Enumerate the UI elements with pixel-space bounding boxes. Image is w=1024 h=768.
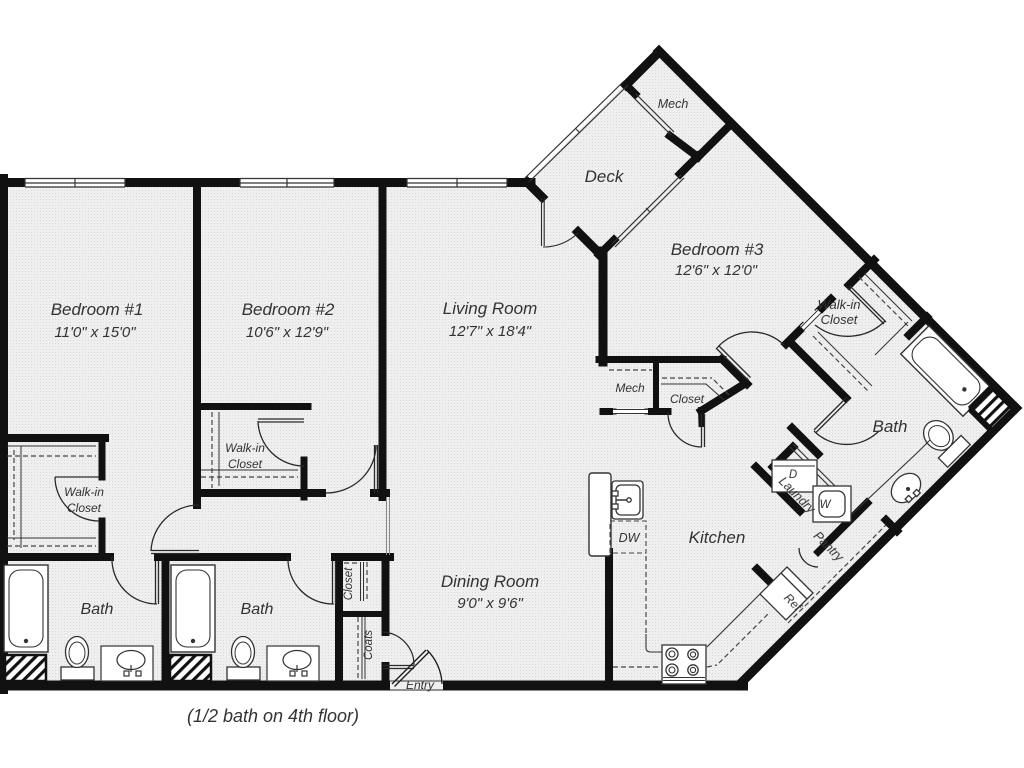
svg-text:W: W bbox=[820, 499, 832, 511]
svg-text:Mech: Mech bbox=[615, 381, 645, 395]
svg-text:Bath: Bath bbox=[241, 601, 274, 618]
svg-text:Bath: Bath bbox=[81, 601, 114, 618]
svg-text:(1/2 bath on 4th floor): (1/2 bath on 4th floor) bbox=[187, 706, 359, 726]
svg-text:Closet: Closet bbox=[670, 392, 705, 406]
svg-text:Dining Room: Dining Room bbox=[441, 572, 539, 591]
svg-text:Closet: Closet bbox=[343, 567, 355, 600]
svg-text:9'0" x 9'6": 9'0" x 9'6" bbox=[457, 595, 523, 612]
svg-text:Walk-in: Walk-in bbox=[817, 297, 860, 312]
svg-text:Closet: Closet bbox=[821, 312, 859, 327]
svg-text:Coats: Coats bbox=[363, 630, 375, 660]
svg-text:Walk-in: Walk-in bbox=[225, 441, 265, 455]
svg-text:Kitchen: Kitchen bbox=[689, 528, 746, 547]
svg-text:Deck: Deck bbox=[585, 167, 625, 186]
svg-text:Living Room: Living Room bbox=[443, 299, 538, 318]
svg-text:10'6" x 12'9": 10'6" x 12'9" bbox=[246, 324, 329, 341]
svg-text:11'0" x 15'0": 11'0" x 15'0" bbox=[54, 324, 136, 341]
svg-text:Bath: Bath bbox=[873, 417, 908, 436]
svg-text:12'7" x 18'4": 12'7" x 18'4" bbox=[449, 323, 532, 340]
svg-text:Mech: Mech bbox=[658, 97, 689, 111]
svg-text:DW: DW bbox=[619, 531, 641, 545]
svg-text:Entry: Entry bbox=[406, 678, 435, 692]
svg-text:Bedroom #2: Bedroom #2 bbox=[242, 300, 335, 319]
svg-text:12'6" x 12'0": 12'6" x 12'0" bbox=[675, 262, 758, 279]
svg-text:Closet: Closet bbox=[67, 501, 102, 515]
svg-text:Bedroom #3: Bedroom #3 bbox=[671, 240, 764, 259]
svg-text:Walk-in: Walk-in bbox=[64, 485, 104, 499]
svg-text:Closet: Closet bbox=[228, 457, 263, 471]
svg-text:Bedroom #1: Bedroom #1 bbox=[51, 300, 144, 319]
